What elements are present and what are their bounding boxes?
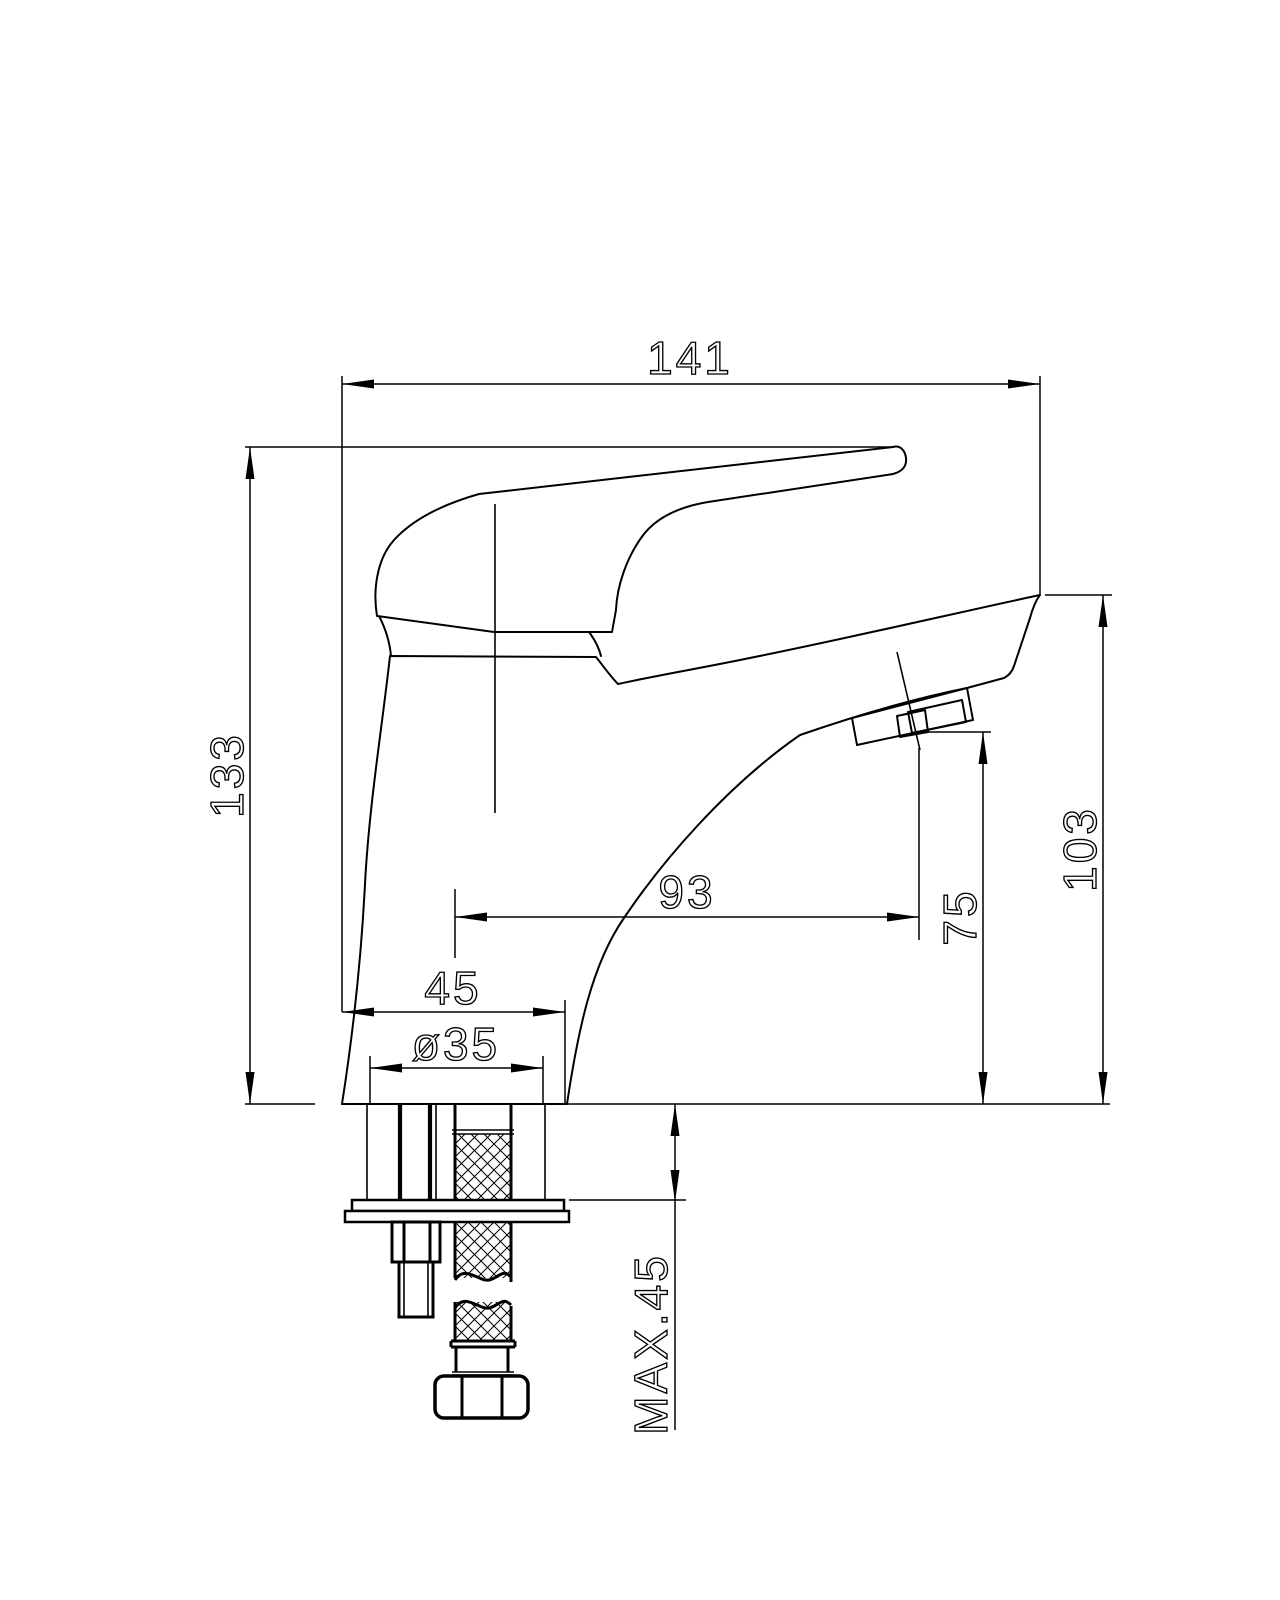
technical-drawing-page: 141 133 103 75 93 45 — [0, 0, 1280, 1600]
hose-lower-ferrule — [451, 1341, 515, 1347]
dimension-spout-tip-height: 103 — [1045, 595, 1112, 1104]
handle-neck-right — [589, 632, 601, 656]
dimension-total-height: 133 — [201, 447, 893, 1104]
dimension-spout-reach: 93 — [455, 748, 919, 958]
faucet-technical-drawing: 141 133 103 75 93 45 — [0, 0, 1280, 1600]
dim-label-total-width: 141 — [647, 332, 733, 384]
dimension-mounting-hole-diameter: ø35 — [370, 1018, 543, 1104]
mounting-hardware — [345, 1104, 569, 1418]
dimension-max-mounting-thickness: MAX.45 — [569, 1104, 686, 1435]
supply-hose — [435, 1104, 528, 1418]
dim-label-base-depth: 45 — [424, 962, 481, 1014]
handle-lever-outline — [375, 447, 906, 632]
hose-hex-nut — [435, 1376, 528, 1418]
dim-label-total-height: 133 — [201, 732, 253, 818]
fixing-nut — [392, 1222, 440, 1317]
dim-label-outlet-height: 75 — [934, 888, 986, 945]
dimension-outlet-height: 75 — [918, 732, 991, 1104]
mounting-flange — [345, 1200, 569, 1222]
dim-label-max-mounting-thickness: MAX.45 — [625, 1253, 677, 1435]
handle-neck-left — [380, 618, 391, 656]
dim-label-mounting-hole-diameter: ø35 — [412, 1018, 500, 1070]
dim-label-spout-tip-height: 103 — [1054, 806, 1106, 892]
dim-label-spout-reach: 93 — [658, 866, 715, 918]
hose-top-ferrule — [452, 1130, 514, 1134]
